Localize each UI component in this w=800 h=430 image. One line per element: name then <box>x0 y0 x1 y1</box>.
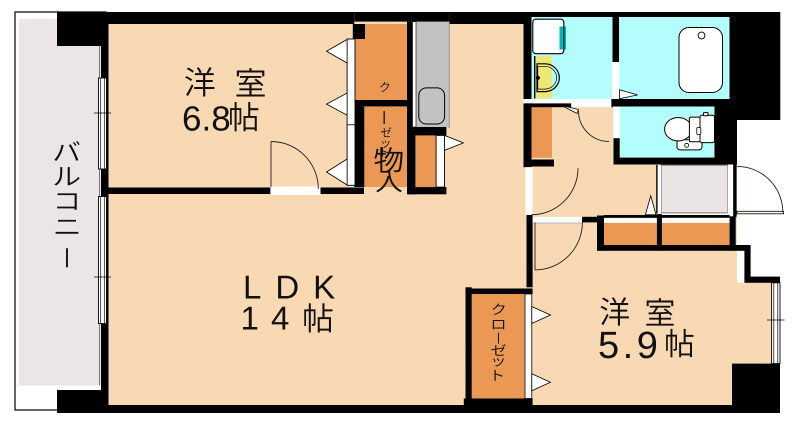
svg-text:1: 1 <box>241 299 259 336</box>
svg-text:LDK: LDK <box>243 269 349 306</box>
svg-text:4: 4 <box>271 299 289 336</box>
svg-text:5.9: 5.9 <box>598 325 661 367</box>
svg-text:6.8: 6.8 <box>182 99 231 138</box>
